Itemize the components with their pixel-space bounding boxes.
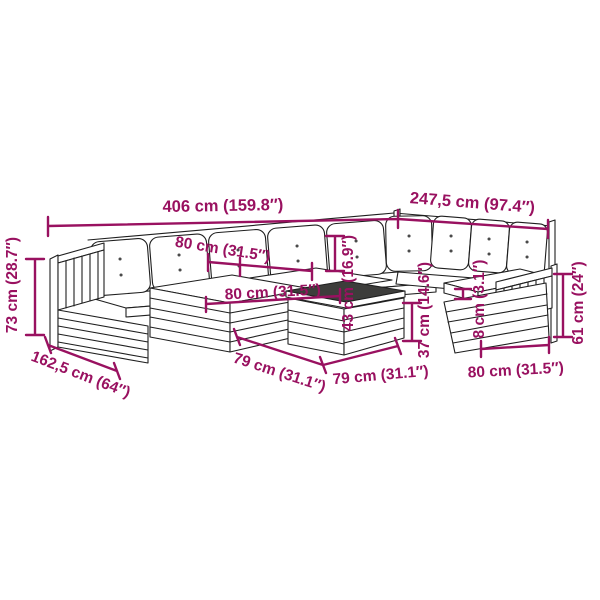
dim-total-height-label: 73 cm (28.7″) (4, 237, 21, 333)
dimension-diagram-page: 406 cm (159.8″) 247,5 cm (97.4″) 80 cm (… (0, 0, 600, 600)
dim-overall-depth-label: 247,5 cm (97.4″) (409, 189, 535, 217)
dim-back-cushion-height-label: 43 cm (16.9″) (340, 235, 357, 331)
dimension-diagram: 406 cm (159.8″) 247,5 cm (97.4″) 80 cm (… (0, 0, 600, 600)
dim-total-height-line (26, 259, 44, 335)
dim-seat-height-label: 37 cm (14.6″) (416, 262, 433, 358)
dim-cushion-thickness-label: 8 cm (3.1″) (471, 260, 488, 339)
dim-table-width-label: 79 cm (31.1″) (332, 363, 429, 388)
dim-table-depth-label: 79 cm (31.1″) (231, 350, 328, 396)
dim-right-module-width-label: 80 cm (31.5″) (467, 360, 564, 382)
dim-overall-width-label: 406 cm (159.8″) (162, 196, 283, 216)
dim-armrest-height-label: 61 cm (24″) (570, 261, 587, 344)
